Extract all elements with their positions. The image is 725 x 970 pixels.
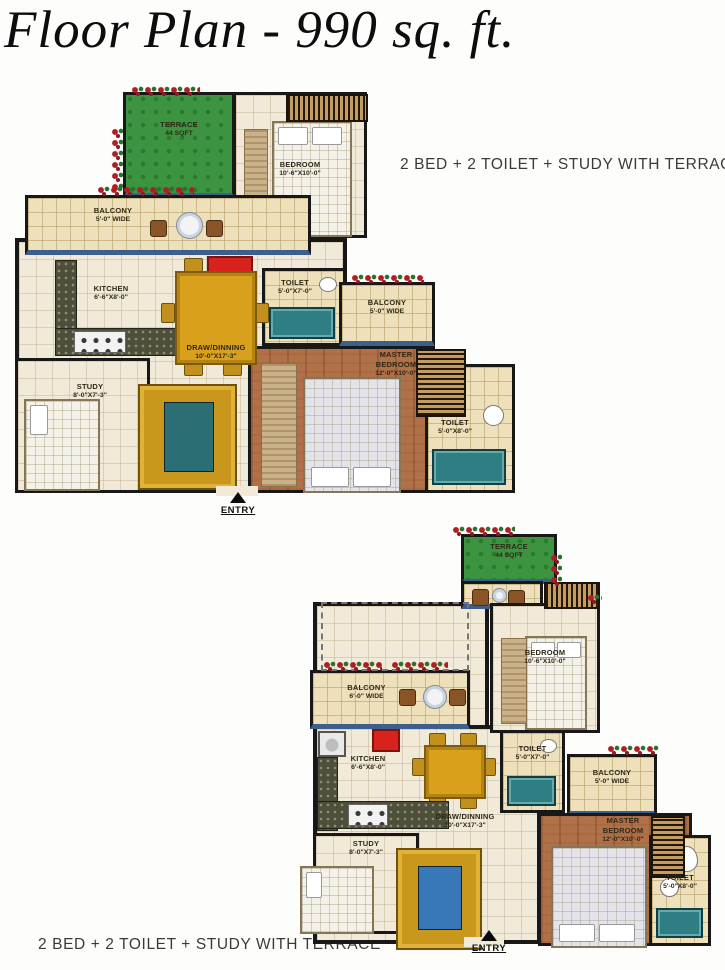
- room-name: TOILET: [424, 418, 486, 428]
- room-dims: 6'-6"X8'-0": [55, 294, 167, 303]
- room-dims: 5'-0" WIDE: [339, 308, 435, 317]
- draw-dining-label: DRAW/DINNING 10'-0"X17'-3": [148, 343, 284, 362]
- bathtub: [507, 776, 556, 806]
- pillow: [30, 405, 48, 435]
- toilet-area: [500, 730, 565, 813]
- room-name: KITCHEN: [318, 754, 418, 764]
- toilet-right-label: TOILET 5'-0"X8'-0": [649, 873, 711, 892]
- room-dims: 10'-6"X10'-0": [233, 170, 367, 179]
- page-title: Floor Plan - 990 sq. ft.: [4, 0, 515, 60]
- pillow: [306, 872, 322, 898]
- chair: [472, 589, 489, 606]
- room-dims: 5'-0"X7'-0": [500, 754, 565, 763]
- study-area: [15, 358, 150, 493]
- room-name: BALCONY: [567, 768, 657, 778]
- room-dims: 10'-0"X17'-3": [148, 353, 284, 362]
- washbasin: [483, 405, 504, 426]
- floor-plan-upper: TERRACE 44 SQFT BEDROOM 10'-6"X10'-0" BA…: [10, 88, 515, 530]
- room-name: TOILET: [500, 744, 565, 754]
- room-dims: 44 SQFT: [461, 552, 557, 561]
- stove: [74, 331, 126, 353]
- kitchen-appliance: [372, 729, 400, 752]
- chair: [449, 689, 466, 706]
- balcony-label: BALCONY 6'-0" WIDE: [314, 683, 419, 702]
- balcony-right-label: BALCONY 5'-0" WIDE: [567, 768, 657, 787]
- bed: [551, 846, 647, 948]
- round-table: [423, 685, 447, 709]
- bed: [300, 866, 374, 934]
- balcony-label: BALCONY 5'-0" WIDE: [58, 206, 168, 225]
- room-name: MASTER BEDROOM: [588, 816, 658, 836]
- study-label: STUDY 8'-0"X7'-3": [316, 839, 416, 858]
- master-bedroom-label: MASTER BEDROOM 12'-0"X10'-0": [362, 350, 430, 378]
- toilet-right-label: TOILET 5'-0"X8'-0": [424, 418, 486, 437]
- room-dims: 12'-0"X10'-0": [588, 836, 658, 845]
- dining-chair: [255, 303, 269, 323]
- dining-chair: [184, 258, 203, 272]
- room-name: TOILET: [649, 873, 711, 883]
- room-name: TERRACE: [461, 542, 557, 552]
- chair: [206, 220, 223, 237]
- room-name: TERRACE: [123, 120, 235, 130]
- flower-decor: [324, 661, 382, 671]
- flower-decor: [392, 661, 448, 671]
- pillow: [353, 467, 391, 487]
- pillow: [559, 924, 595, 942]
- room-name: BEDROOM: [233, 160, 367, 170]
- round-table: [176, 212, 203, 239]
- room-name: BALCONY: [339, 298, 435, 308]
- terrace-area: [123, 92, 235, 198]
- room-name: TOILET: [262, 278, 328, 288]
- room-dims: 5'-0"X7'-0": [262, 288, 328, 297]
- flower-decor: [132, 86, 200, 96]
- room-dims: 12'-0"X10'-0": [362, 370, 430, 379]
- draw-dining-label: DRAW/DINNING 10'-0"X17'-3": [398, 812, 532, 831]
- flower-decor: [588, 594, 602, 606]
- room-name: STUDY: [35, 382, 145, 392]
- toilet-label: TOILET 5'-0"X7'-0": [262, 278, 328, 297]
- study-label: STUDY 8'-0"X7'-3": [35, 382, 145, 401]
- room-dims: 5'-0"X8'-0": [424, 428, 486, 437]
- room-name: DRAW/DINNING: [398, 812, 532, 822]
- kitchen-label: KITCHEN 6'-6"X8'-0": [55, 284, 167, 303]
- master-bedroom-label: MASTER BEDROOM 12'-0"X10'-0": [588, 816, 658, 844]
- pillow: [278, 127, 308, 145]
- balcony-right-label: BALCONY 5'-0" WIDE: [339, 298, 435, 317]
- room-dims: 8'-0"X7'-3": [35, 392, 145, 401]
- flower-decor: [98, 186, 194, 196]
- entry-arrow-icon: [230, 492, 246, 503]
- room-name: STUDY: [316, 839, 416, 849]
- room-name: BEDROOM: [490, 648, 600, 658]
- room-dims: 44 SQFT: [123, 130, 235, 139]
- room-name: BALCONY: [314, 683, 419, 693]
- entry-marker: ENTRY: [206, 492, 270, 516]
- rug: [261, 363, 297, 487]
- room-dims: 8'-0"X7'-3": [316, 849, 416, 858]
- room-name: DRAW/DINNING: [148, 343, 284, 353]
- wardrobe: [286, 94, 368, 122]
- round-table: [492, 588, 507, 603]
- bathtub: [432, 449, 506, 485]
- floor-plan-lower: TERRACE 44 SQFT BEDROOM 10'-6"X10'-0" BA…: [288, 528, 725, 970]
- room-name: BALCONY: [58, 206, 168, 216]
- entry-label: ENTRY: [206, 505, 270, 516]
- kitchen-label: KITCHEN 6'-6"X8'-0": [318, 754, 418, 773]
- dining-table: [424, 745, 486, 799]
- pillow: [312, 127, 342, 145]
- stove: [348, 804, 388, 826]
- pillow: [311, 467, 349, 487]
- bedroom-label: BEDROOM 10'-6"X10'-0": [490, 648, 600, 667]
- room-dims: 6'-6"X8'-0": [318, 764, 418, 773]
- room-name: KITCHEN: [55, 284, 167, 294]
- bathtub: [269, 307, 335, 339]
- pillow: [599, 924, 635, 942]
- sofa: [138, 384, 237, 490]
- entry-marker: ENTRY: [458, 930, 520, 954]
- bedroom-area: [490, 603, 600, 733]
- bed: [24, 399, 100, 491]
- room-name: MASTER BEDROOM: [362, 350, 430, 370]
- room-dims: 5'-0" WIDE: [567, 778, 657, 787]
- terrace-label: TERRACE 44 SQFT: [123, 120, 235, 139]
- room-dims: 10'-0"X17'-3": [398, 822, 532, 831]
- toilet-label: TOILET 5'-0"X7'-0": [500, 744, 565, 763]
- bedroom-label: BEDROOM 10'-6"X10'-0": [233, 160, 367, 179]
- terrace-label: TERRACE 44 SQFT: [461, 542, 557, 561]
- bathtub: [656, 908, 703, 938]
- room-dims: 6'-0" WIDE: [314, 693, 419, 702]
- floor-plan-page: Floor Plan - 990 sq. ft. 2 BED + 2 TOILE…: [0, 0, 725, 970]
- room-dims: 10'-6"X10'-0": [490, 658, 600, 667]
- flower-decor: [608, 745, 660, 755]
- flower-decor: [453, 526, 515, 536]
- sofa-cushion: [418, 866, 462, 930]
- room-dims: 5'-0" WIDE: [58, 216, 168, 225]
- entry-arrow-icon: [481, 930, 497, 941]
- flower-decor: [352, 274, 424, 283]
- room-dims: 5'-0"X8'-0": [649, 883, 711, 892]
- entry-label: ENTRY: [458, 943, 520, 954]
- sofa-cushion: [164, 402, 214, 472]
- flower-decor: [112, 128, 123, 190]
- bed: [303, 377, 401, 493]
- dining-chair: [161, 303, 175, 323]
- balcony-area: [25, 195, 311, 255]
